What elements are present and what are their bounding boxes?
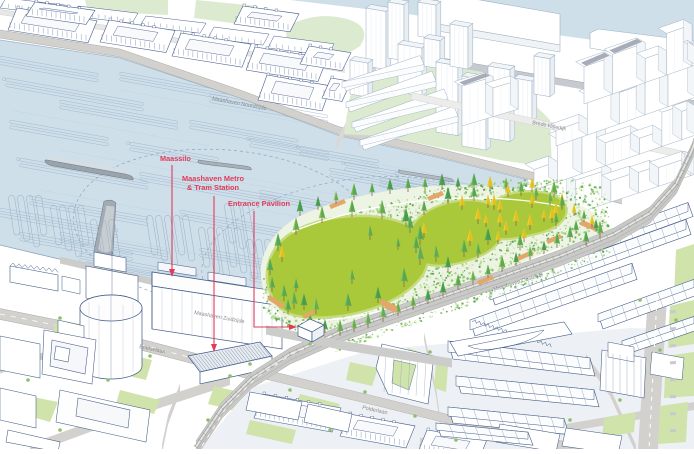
svg-text:Entrance Pavilion: Entrance Pavilion [228,199,291,208]
svg-text:& Tram Station: & Tram Station [187,183,240,192]
svg-text:Maashaven Metro: Maashaven Metro [182,174,245,183]
svg-text:Maassilo: Maassilo [160,154,191,163]
